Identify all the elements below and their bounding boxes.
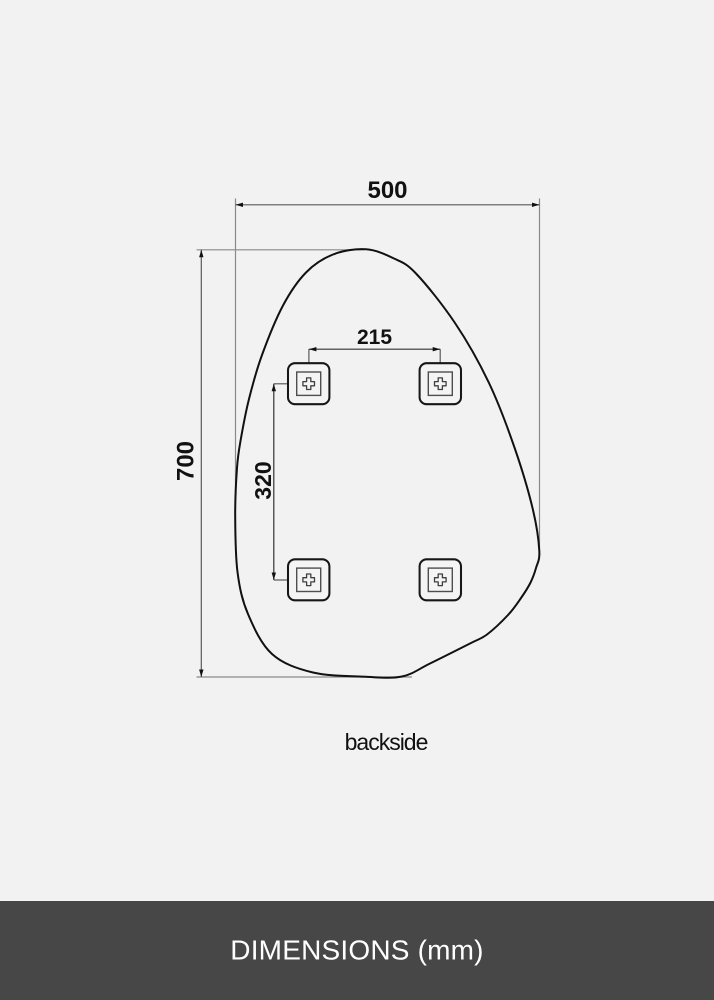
svg-text:backside: backside bbox=[345, 729, 428, 755]
svg-text:320: 320 bbox=[250, 461, 276, 499]
svg-text:500: 500 bbox=[367, 177, 407, 204]
svg-text:215: 215 bbox=[357, 326, 392, 349]
svg-text:DIMENSIONS (mm): DIMENSIONS (mm) bbox=[230, 935, 483, 966]
svg-text:700: 700 bbox=[173, 441, 200, 481]
